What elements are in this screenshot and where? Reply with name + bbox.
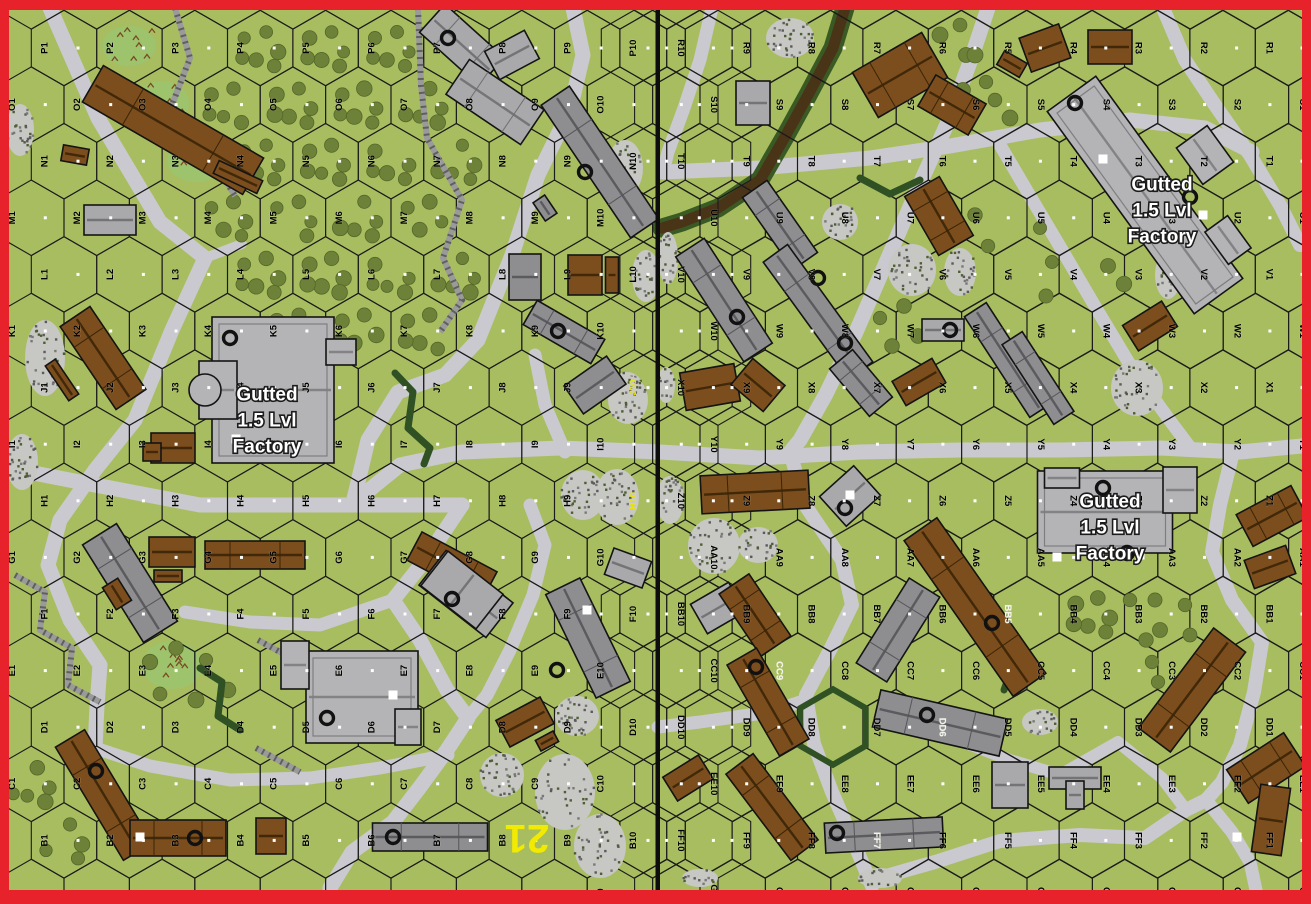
hex-center-dot (502, 782, 505, 785)
rubble-speckle (596, 815, 598, 817)
rubble-speckle (495, 763, 497, 765)
rubble-speckle (45, 321, 47, 323)
orchard-tree-icon (1139, 633, 1153, 647)
rubble-speckle (1146, 363, 1148, 365)
hex-center-dot (1039, 47, 1042, 50)
rubble-speckle (596, 490, 598, 492)
hex-label-EE9: EE9 (774, 775, 785, 793)
factory-building (1045, 468, 1080, 488)
rubble-speckle (618, 402, 620, 404)
hex-center-dot (1268, 782, 1271, 785)
rubble-speckle (33, 380, 35, 382)
hex-label-CC3: CC3 (1166, 661, 1177, 680)
hex-center-dot (1007, 669, 1010, 672)
rubble-speckle (972, 257, 974, 259)
hex-center-dot (273, 726, 276, 729)
hex-center-dot (207, 499, 210, 502)
hex-label-C3: C3 (138, 778, 149, 790)
rubble-speckle (672, 271, 674, 273)
hex-label-L9: L9 (563, 269, 574, 280)
hex-center-dot (777, 839, 780, 842)
hex-center-dot (1039, 613, 1042, 616)
rubble-speckle (920, 262, 922, 264)
orchard-tree-icon (314, 279, 330, 295)
hex-center-dot (1072, 782, 1075, 785)
hex-label-D6: D6 (367, 721, 378, 733)
hex-label-P5: P5 (301, 41, 312, 53)
rubble-speckle (878, 869, 880, 871)
hex-center-dot (647, 499, 650, 502)
rubble-speckle (715, 529, 717, 531)
rubble-speckle (19, 126, 21, 128)
rubble-speckle (611, 482, 613, 484)
hex-center-dot (712, 726, 715, 729)
rubble-speckle (613, 478, 615, 480)
hex-label-L2: L2 (105, 269, 116, 280)
hex-label-AA7: AA7 (904, 548, 915, 567)
orchard-tree-icon (324, 138, 338, 152)
red-border-edge (0, 0, 1311, 10)
hex-label-DD10: DD10 (675, 715, 686, 739)
rubble-speckle (609, 487, 611, 489)
rubble-speckle (665, 486, 667, 488)
rubble-speckle (19, 437, 21, 439)
rubble-speckle (766, 551, 768, 553)
rubble-speckle (33, 383, 35, 385)
hex-center-dot (305, 782, 308, 785)
hex-center-dot (908, 726, 911, 729)
hex-center-dot (240, 216, 243, 219)
hex-label-Y5: Y5 (1035, 438, 1046, 450)
rubble-speckle (1157, 283, 1159, 285)
hex-label-E10: E10 (595, 662, 606, 679)
rubble-speckle (824, 220, 826, 222)
orchard-tree-icon (1045, 255, 1058, 268)
rubble-speckle (508, 776, 510, 778)
hex-center-dot (142, 499, 145, 502)
rubble-speckle (748, 529, 750, 531)
rubble-speckle (689, 547, 691, 549)
hex-center-dot (1138, 443, 1141, 446)
rubble-speckle (491, 759, 493, 761)
rubble-speckle (775, 544, 777, 546)
red-border-edge (0, 890, 1311, 904)
hex-center-dot (600, 160, 603, 163)
hex-label-W10: W10 (708, 321, 719, 341)
hex-center-dot (109, 103, 112, 106)
hex-label-K8: K8 (465, 325, 476, 337)
rubble-speckle (574, 734, 576, 736)
rubble-speckle (624, 517, 626, 519)
rubble-speckle (19, 137, 21, 139)
rubble-speckle (629, 409, 631, 411)
rubble-speckle (1029, 721, 1031, 723)
rubble-speckle (600, 813, 602, 815)
hex-center-dot (974, 613, 977, 616)
hex-center-dot (175, 556, 178, 559)
rubble-speckle (625, 391, 627, 393)
rubble-speckle (582, 798, 584, 800)
hex-center-dot (843, 160, 846, 163)
rubble-speckle (568, 787, 570, 789)
hex-center-dot (338, 273, 341, 276)
rubble-speckle (596, 480, 598, 482)
hex-label-O9: O9 (530, 98, 541, 111)
hex-center-dot (436, 330, 439, 333)
rubble-speckle (641, 412, 643, 414)
rubble-speckle (616, 497, 618, 499)
hex-label-N5: N5 (301, 154, 312, 167)
hex-center-dot (305, 443, 308, 446)
hex-center-dot (207, 47, 210, 50)
hex-center-dot (712, 273, 715, 276)
hex-center-dot (1007, 443, 1010, 446)
hex-center-dot (632, 330, 635, 333)
hex-center-dot (1072, 103, 1075, 106)
hex-center-dot (811, 330, 814, 333)
rubble-speckle (802, 26, 804, 28)
rubble-speckle (23, 141, 25, 143)
hex-label-AA2: AA2 (1231, 548, 1242, 567)
hex-center-dot (843, 386, 846, 389)
hex-center-dot (240, 103, 243, 106)
hex-label-I9: I9 (530, 440, 541, 448)
orchard-tree-icon (315, 167, 327, 179)
hex-label-CC4: CC4 (1101, 661, 1112, 681)
hex-label-B3: B3 (170, 834, 181, 846)
hex-label-K7: K7 (399, 325, 410, 337)
rubble-speckle (560, 717, 562, 719)
rubble-speckle (905, 249, 907, 251)
hex-label-AA10: AA10 (708, 545, 719, 569)
rubble-speckle (599, 843, 601, 845)
rubble-speckle (668, 244, 670, 246)
hex-label-EE7: EE7 (904, 775, 915, 793)
rubble-speckle (540, 797, 542, 799)
hex-center-dot (908, 613, 911, 616)
hex-label-Z10: Z10 (675, 493, 686, 509)
rubble-speckle (564, 791, 566, 793)
rubble-speckle (723, 562, 725, 564)
hex-label-W4: W4 (1101, 324, 1112, 339)
hex-label-BB9: BB9 (740, 604, 751, 623)
orchard-tree-icon (1183, 628, 1197, 642)
rubble-speckle (630, 515, 632, 517)
rubble-speckle (25, 475, 27, 477)
hex-label-E3: E3 (138, 665, 149, 677)
hex-label-H4: H4 (236, 494, 247, 507)
rubble-speckle (965, 282, 967, 284)
hex-label-F8: F8 (497, 608, 508, 619)
hex-label-X3: X3 (1133, 382, 1144, 394)
rubble-speckle (1126, 407, 1128, 409)
hex-map-board[interactable]: P1P2P3P4P5P6P7P8P9P10O1O2O3O4O5O6O7O8O9O… (0, 0, 1311, 904)
rubble-speckle (15, 470, 17, 472)
hex-label-U9: U9 (774, 212, 785, 224)
hex-label-E8: E8 (465, 665, 476, 677)
rubble-speckle (664, 263, 666, 265)
hex-label-EE3: EE3 (1166, 775, 1177, 793)
rubble-speckle (9, 463, 11, 465)
hex-label-F9: F9 (563, 608, 574, 619)
rubble-speckle (964, 280, 966, 282)
rubble-speckle (804, 37, 806, 39)
hex-center-dot (338, 613, 341, 616)
rubble-speckle (572, 787, 574, 789)
rubble-speckle (578, 856, 580, 858)
rubble-speckle (11, 459, 13, 461)
rubble-speckle (595, 484, 597, 486)
hex-label-D9: D9 (563, 721, 574, 733)
rubble-speckle (626, 145, 628, 147)
hex-center-dot (777, 726, 780, 729)
orchard-tree-icon (398, 173, 411, 186)
hex-center-dot (908, 273, 911, 276)
hex-label-I6: I6 (334, 440, 345, 448)
rubble-speckle (672, 481, 674, 483)
rubble-speckle (778, 29, 780, 31)
hex-label-M4: M4 (203, 210, 214, 224)
hex-label-BB8: BB8 (806, 604, 817, 623)
hex-center-dot (941, 216, 944, 219)
hex-label-Y3: Y3 (1166, 438, 1177, 450)
hex-label-R8: R8 (806, 42, 817, 54)
rubble-speckle (744, 530, 746, 532)
rubble-speckle (638, 407, 640, 409)
hex-center-dot (1138, 330, 1141, 333)
hex-label-N7: N7 (432, 155, 443, 167)
rubble-speckle (721, 533, 723, 535)
rubble-speckle (829, 230, 831, 232)
rubble-speckle (480, 769, 482, 771)
hex-center-dot (1235, 499, 1238, 502)
hex-label-H7: H7 (432, 495, 443, 507)
rubble-speckle (598, 828, 600, 830)
orchard-tree-icon (1039, 289, 1053, 303)
rubble-speckle (971, 286, 973, 288)
rubble-speckle (836, 208, 838, 210)
rubble-speckle (612, 475, 614, 477)
rubble-speckle (1115, 374, 1117, 376)
rubble-speckle (701, 560, 703, 562)
hex-center-dot (647, 386, 650, 389)
hex-center-dot (600, 839, 603, 842)
hex-center-dot (534, 160, 537, 163)
rubble-speckle (773, 35, 775, 37)
rubble-speckle (793, 56, 795, 58)
rubble-speckle (887, 884, 889, 886)
rubble-speckle (625, 406, 627, 408)
hex-label-U2: U2 (1231, 212, 1242, 224)
hex-label-B10: B10 (628, 832, 639, 849)
hex-center-dot (567, 782, 570, 785)
hex-center-dot (876, 103, 879, 106)
hex-center-dot (436, 443, 439, 446)
rubble-speckle (601, 836, 603, 838)
hex-label-U8: U8 (839, 212, 850, 224)
rubble-speckle (1115, 389, 1117, 391)
hex-center-dot (1072, 330, 1075, 333)
hex-center-dot (436, 216, 439, 219)
hex-center-dot (77, 839, 80, 842)
hex-label-L7: L7 (432, 269, 443, 280)
hex-center-dot (1007, 216, 1010, 219)
hex-label-D2: D2 (105, 721, 116, 733)
rubble-speckle (585, 798, 587, 800)
rubble-speckle (634, 416, 636, 418)
hex-label-FF2: FF2 (1198, 832, 1209, 849)
rubble-speckle (1146, 393, 1148, 395)
orchard-tree-icon (325, 26, 338, 39)
rubble-speckle (674, 252, 676, 254)
rubble-speckle (617, 846, 619, 848)
rubble-speckle (697, 527, 699, 529)
hex-center-dot (338, 499, 341, 502)
factory-label: Factory (1128, 227, 1197, 248)
hex-center-dot (600, 386, 603, 389)
hex-label-DD7: DD7 (871, 718, 882, 737)
hex-center-dot (44, 443, 47, 446)
rubble-speckle (550, 788, 552, 790)
hex-center-dot (502, 330, 505, 333)
wooden-building (205, 541, 305, 569)
rubble-speckle (639, 262, 641, 264)
orchard-tree-icon (430, 115, 446, 131)
orchard-tree-icon (300, 116, 314, 130)
rubble-speckle (31, 117, 33, 119)
hex-center-dot (1203, 103, 1206, 106)
hex-label-G2: G2 (72, 551, 83, 564)
hex-center-dot (1203, 669, 1206, 672)
hex-center-dot (502, 103, 505, 106)
hex-label-Z7: Z7 (871, 495, 882, 506)
rubble-speckle (671, 477, 673, 479)
hex-label-I3: I3 (138, 440, 149, 448)
rubble-speckle (42, 372, 44, 374)
rubble-speckle (1148, 367, 1150, 369)
rubble-speckle (564, 715, 566, 717)
rubble-speckle (574, 497, 576, 499)
rubble-speckle (957, 257, 959, 259)
hex-center-dot (371, 556, 374, 559)
hex-center-dot (731, 386, 734, 389)
factory-apse (189, 374, 221, 406)
hex-center-dot (338, 839, 341, 842)
rubble-speckle (791, 54, 793, 56)
rubble-speckle (647, 292, 649, 294)
factory-label: 1.5 Lvl (237, 411, 296, 432)
hex-label-J2: J2 (105, 382, 116, 393)
hex-center-dot (908, 386, 911, 389)
hex-label-N9: N9 (563, 155, 574, 167)
hex-label-CC8: CC8 (839, 661, 850, 680)
rubble-speckle (926, 278, 928, 280)
hex-center-dot (941, 443, 944, 446)
hex-label-E7: E7 (399, 665, 410, 677)
hex-label-C5: C5 (268, 777, 279, 790)
rubble-speckle (896, 269, 898, 271)
rubble-speckle (720, 535, 722, 537)
rubble-speckle (699, 534, 701, 536)
factory-building (1163, 467, 1197, 513)
hex-label-H3: H3 (170, 495, 181, 507)
hex-label-M3: M3 (138, 211, 149, 224)
rubble-speckle (600, 873, 602, 875)
hex-center-dot (698, 103, 701, 106)
rubble-speckle (958, 271, 960, 273)
hex-label-X8: X8 (806, 382, 817, 394)
hex-label-K5: K5 (268, 324, 279, 337)
hex-center-dot (305, 216, 308, 219)
rubble-speckle (634, 171, 636, 173)
hex-center-dot (207, 273, 210, 276)
hex-center-dot (109, 556, 112, 559)
rubble-speckle (579, 790, 581, 792)
hex-label-U6: U6 (970, 212, 981, 224)
rubble-speckle (835, 234, 837, 236)
rubble-speckle (765, 544, 767, 546)
rubble-speckle (669, 485, 671, 487)
hex-label-V7: V7 (871, 269, 882, 281)
hex-center-dot (371, 443, 374, 446)
hex-label-DD6: DD6 (937, 718, 948, 737)
hex-label-O4: O4 (203, 98, 214, 111)
hex-center-dot (436, 782, 439, 785)
hex-center-dot (712, 839, 715, 842)
hex-center-dot (745, 669, 748, 672)
rubble-speckle (557, 787, 559, 789)
hex-center-dot (1104, 273, 1107, 276)
hex-label-J8: J8 (497, 382, 508, 393)
rubble-speckle (620, 835, 622, 837)
orchard-tree-icon (267, 59, 281, 73)
rubble-speckle (665, 510, 667, 512)
hex-label-J3: J3 (170, 382, 181, 393)
rubble-speckle (669, 490, 671, 492)
rubble-speckle (799, 51, 801, 53)
hex-center-dot (1170, 726, 1173, 729)
rubble-speckle (564, 798, 566, 800)
hex-center-dot (680, 443, 683, 446)
factory-building (395, 709, 421, 745)
hex-center-dot (876, 669, 879, 672)
rubble-speckle (507, 780, 509, 782)
rubble-speckle (663, 507, 665, 509)
rubble-speckle (618, 861, 620, 863)
rubble-speckle (38, 333, 40, 335)
hex-label-N10: N10 (628, 152, 639, 169)
hex-label-T10: T10 (675, 153, 686, 169)
hex-label-P3: P3 (170, 42, 181, 54)
orchard-tree-icon (267, 172, 280, 185)
orchard-tree-icon (332, 172, 346, 186)
hex-label-G8: G8 (465, 551, 476, 564)
hex-center-dot (712, 47, 715, 50)
hex-label-G6: G6 (334, 551, 345, 564)
hex-label-V8: V8 (806, 269, 817, 281)
hex-label-V1: V1 (1264, 269, 1275, 281)
hex-center-dot (534, 47, 537, 50)
rubble-speckle (508, 793, 510, 795)
hex-label-EE10: EE10 (708, 772, 719, 795)
rubble-speckle (578, 837, 580, 839)
rubble-speckle (970, 268, 972, 270)
rubble-speckle (40, 335, 42, 337)
rubble-speckle (878, 883, 880, 885)
hex-label-T8: T8 (806, 156, 817, 167)
hex-label-FF1: FF1 (1264, 832, 1275, 850)
rubble-speckle (619, 150, 621, 152)
